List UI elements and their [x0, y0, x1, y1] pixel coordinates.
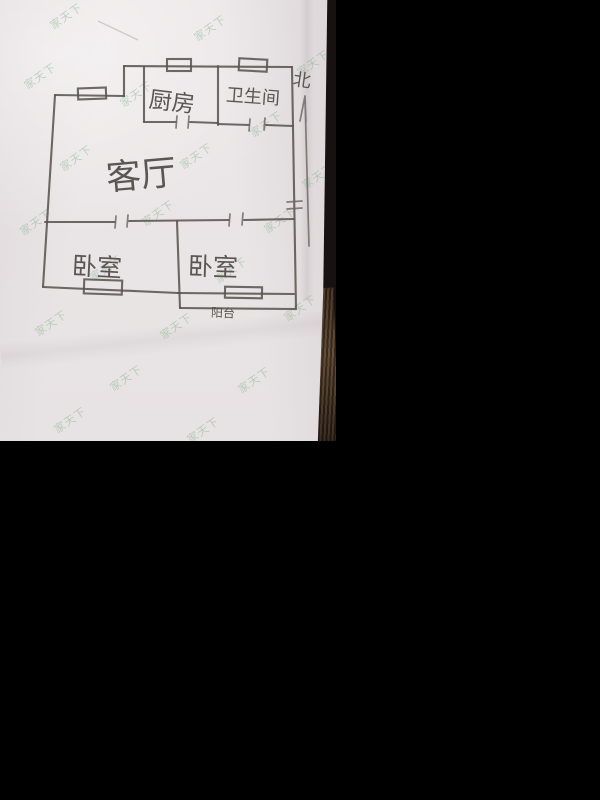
bedroom-right-bottom-wall — [178, 293, 294, 294]
floor-plan-sketch: 北 厨房 卫生间 客厅 卧室 卧室 阳台 — [0, 0, 336, 441]
window-top-left — [78, 88, 106, 100]
bathroom-label: 卫生间 — [225, 85, 280, 110]
window-bathroom — [239, 58, 268, 71]
kitchen-door-marks — [176, 116, 189, 128]
balcony-bottom-wall — [180, 308, 295, 309]
kitchen-label: 厨房 — [147, 87, 196, 118]
bathroom-door-marks — [249, 118, 265, 131]
kitchen-bottom-wall — [144, 122, 218, 123]
bedroom-left-door-marks — [115, 215, 128, 228]
bottom-left-wall — [43, 287, 178, 293]
left-wall — [43, 95, 55, 287]
window-kitchen — [167, 59, 191, 71]
bedroom-divider-wall — [177, 221, 180, 308]
balcony-label: 阳台 — [211, 305, 236, 321]
north-arrow — [300, 96, 309, 246]
bedroom-right-label: 卧室 — [187, 252, 238, 283]
bathroom-bottom-wall — [218, 124, 293, 126]
right-wall — [292, 67, 296, 309]
stray-pencil-mark — [98, 21, 138, 40]
photo-of-floor-plan: 家天下 家天下 家天下 家天下 家天下 家天下 家天下 家天下 家天下 家天下 … — [0, 0, 336, 441]
living-bedroom-wall — [45, 219, 294, 222]
north-label: 北 — [292, 69, 313, 92]
bedroom-right-door-marks — [229, 213, 243, 226]
living-room-top-wall — [55, 95, 124, 96]
bedroom-left-label: 卧室 — [71, 251, 122, 283]
living-room-label: 客厅 — [105, 153, 178, 199]
